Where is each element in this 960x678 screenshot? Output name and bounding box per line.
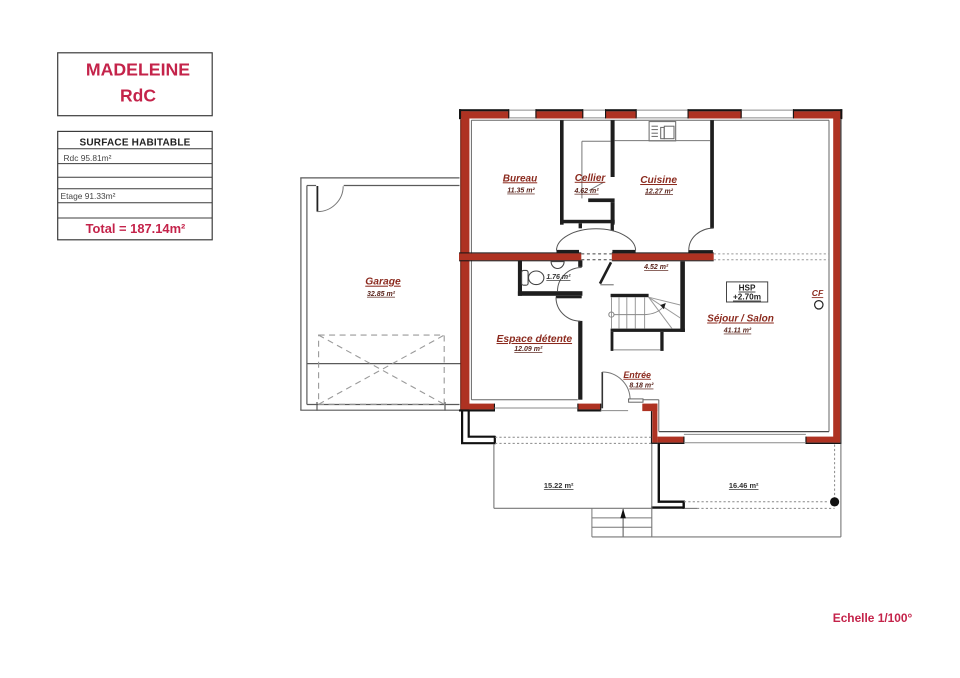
svg-text:4.52 m²: 4.52 m²: [643, 264, 669, 271]
svg-text:8.18 m²: 8.18 m²: [629, 383, 654, 390]
svg-text:Cellier: Cellier: [575, 173, 607, 184]
svg-text:CF: CF: [812, 288, 824, 298]
svg-text:SURFACE HABITABLE: SURFACE HABITABLE: [80, 137, 191, 148]
svg-text:12.09 m²: 12.09 m²: [514, 346, 543, 353]
svg-text:Etage 91.33m²: Etage 91.33m²: [61, 191, 116, 201]
svg-text:HSP: HSP: [739, 284, 756, 293]
svg-text:32.85 m²: 32.85 m²: [367, 291, 396, 298]
svg-text:4.62 m²: 4.62 m²: [573, 188, 599, 195]
svg-text:Garage: Garage: [365, 277, 401, 288]
svg-text:Total = 187.14m²: Total = 187.14m²: [86, 221, 186, 236]
svg-text:41.11 m²: 41.11 m²: [723, 328, 752, 335]
svg-text:Rdc 95.81m²: Rdc 95.81m²: [64, 153, 112, 163]
svg-text:12.27 m²: 12.27 m²: [645, 188, 674, 195]
svg-text:Entrée: Entrée: [623, 370, 651, 380]
svg-text:MADELEINE: MADELEINE: [86, 60, 190, 80]
svg-text:Bureau: Bureau: [503, 173, 537, 184]
svg-text:1.76 m²: 1.76 m²: [546, 274, 571, 281]
svg-text:Séjour / Salon: Séjour / Salon: [707, 314, 774, 325]
svg-text:16.46 m²: 16.46 m²: [729, 481, 759, 490]
svg-text:Cuisine: Cuisine: [640, 175, 677, 186]
svg-text:15.22 m²: 15.22 m²: [544, 481, 574, 490]
svg-text:Echelle 1/100°: Echelle 1/100°: [833, 611, 913, 625]
svg-text:+2.70m: +2.70m: [733, 293, 761, 302]
svg-text:RdC: RdC: [120, 86, 156, 106]
svg-text:Espace détente: Espace détente: [497, 334, 573, 345]
svg-text:11.35 m²: 11.35 m²: [507, 188, 535, 195]
